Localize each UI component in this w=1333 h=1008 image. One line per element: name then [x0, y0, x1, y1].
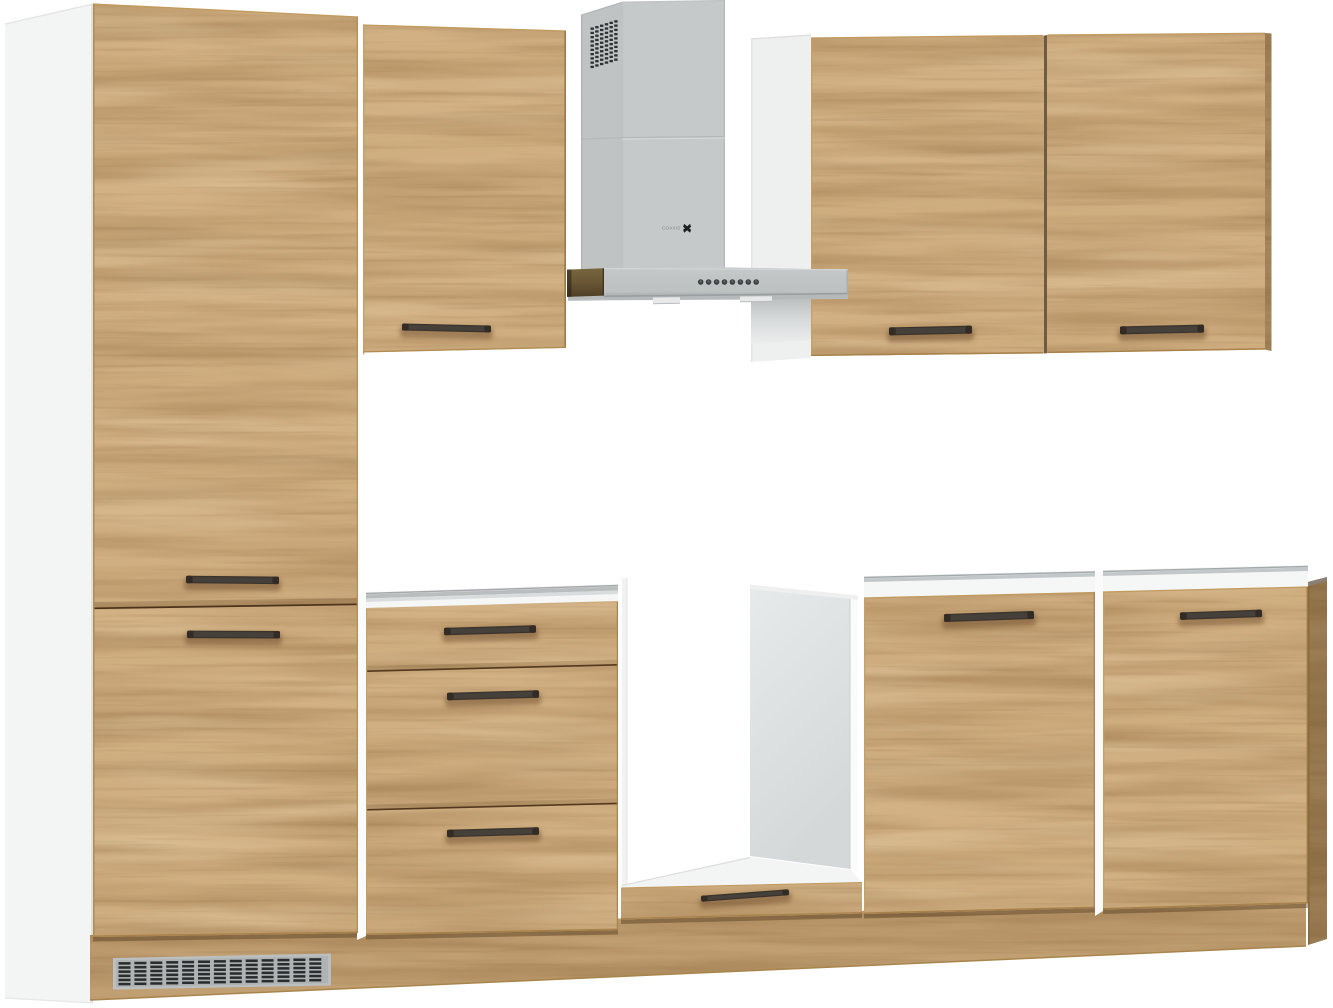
- svg-text:COAXIS: COAXIS: [662, 226, 681, 231]
